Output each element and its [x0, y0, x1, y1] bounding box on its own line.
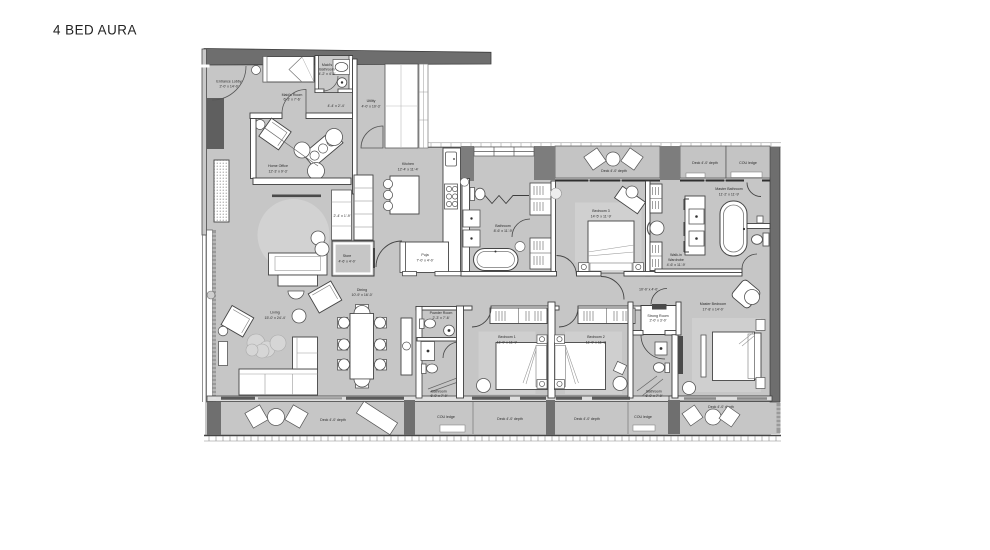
- svg-text:4'-4' x 2'-4': 4'-4' x 2'-4': [328, 104, 345, 108]
- svg-text:Bathroom: Bathroom: [495, 224, 511, 228]
- svg-text:Deck 4'-0' depth: Deck 4'-0' depth: [574, 417, 600, 421]
- svg-text:Living: Living: [270, 311, 279, 315]
- svg-text:Bathroom: Bathroom: [431, 390, 447, 394]
- svg-text:Home Office: Home Office: [268, 164, 288, 168]
- svg-text:Bathroom: Bathroom: [319, 68, 335, 72]
- svg-text:Utility: Utility: [367, 99, 376, 103]
- svg-text:12'-3' x 9'-3': 12'-3' x 9'-3': [269, 170, 288, 174]
- svg-text:2'-3' x 7'-6': 2'-3' x 7'-6': [433, 316, 450, 320]
- svg-text:11'-0' x 11'-9': 11'-0' x 11'-9': [497, 341, 518, 345]
- svg-text:4 BED AURA: 4 BED AURA: [53, 23, 137, 38]
- svg-text:Maid's: Maid's: [322, 63, 332, 67]
- svg-text:Bedroom 1: Bedroom 1: [498, 335, 516, 339]
- svg-text:Entrance Lobby: Entrance Lobby: [216, 80, 241, 84]
- svg-text:8'-6' x 11'-9': 8'-6' x 11'-9': [494, 229, 513, 233]
- svg-text:Powder Room: Powder Room: [430, 311, 453, 315]
- svg-text:11'-2' x 11'-9': 11'-2' x 11'-9': [719, 193, 740, 197]
- svg-text:COU ledge: COU ledge: [634, 415, 652, 419]
- svg-text:Store: Store: [343, 254, 352, 258]
- svg-text:10'-0' x 4'-0': 10'-0' x 4'-0': [639, 288, 658, 292]
- svg-text:COU ledge: COU ledge: [739, 161, 757, 165]
- svg-text:Master Bathroom: Master Bathroom: [715, 187, 743, 191]
- svg-text:2'-0' x 14'-0': 2'-0' x 14'-0': [220, 85, 239, 89]
- svg-text:Master Bedroom: Master Bedroom: [700, 302, 727, 306]
- svg-text:4'-2' x 4'-6': 4'-2' x 4'-6': [319, 72, 336, 76]
- svg-text:Bedroom 2: Bedroom 2: [587, 335, 605, 339]
- svg-text:Dining: Dining: [357, 288, 367, 292]
- svg-text:6'-0' x 7'-9': 6'-0' x 7'-9': [431, 394, 448, 398]
- svg-text:14'-5' x 11'-9': 14'-5' x 11'-9': [591, 215, 612, 219]
- svg-text:Kitchen: Kitchen: [402, 162, 414, 166]
- svg-text:11'-0' x 11'-9': 11'-0' x 11'-9': [586, 341, 607, 345]
- svg-text:6'-0' x 7'-9': 6'-0' x 7'-9': [646, 394, 663, 398]
- svg-text:Deck 4'-0' depth: Deck 4'-0' depth: [601, 169, 627, 173]
- svg-text:2'-4' x 1'-9': 2'-4' x 1'-9': [334, 214, 351, 218]
- svg-text:2'-0' x 3'-0': 2'-0' x 3'-0': [650, 319, 667, 323]
- svg-text:4'-6' x 11'-9': 4'-6' x 11'-9': [667, 263, 686, 267]
- svg-text:7'-0' x 4'-0': 7'-0' x 4'-0': [417, 259, 434, 263]
- svg-text:Deck 4'-0' depth: Deck 4'-0' depth: [692, 161, 718, 165]
- svg-text:COU ledge: COU ledge: [437, 415, 455, 419]
- svg-text:Bedroom 3: Bedroom 3: [592, 209, 610, 213]
- svg-text:4'-6' x 4'-0': 4'-6' x 4'-0': [339, 260, 356, 264]
- svg-text:Puja: Puja: [421, 253, 428, 257]
- svg-text:10'-9' x 16'-0': 10'-9' x 16'-0': [352, 293, 373, 297]
- svg-text:17'-8' x 14'-0': 17'-8' x 14'-0': [703, 308, 724, 312]
- svg-text:Deck 4'-0' depth: Deck 4'-0' depth: [320, 418, 346, 422]
- svg-text:12'-4' x 11'-4': 12'-4' x 11'-4': [398, 168, 419, 172]
- svg-text:Walk-in: Walk-in: [670, 253, 682, 257]
- svg-text:4'-0' x 10'-3': 4'-0' x 10'-3': [362, 105, 381, 109]
- svg-text:Bathroom: Bathroom: [646, 390, 662, 394]
- svg-text:Wardrobe: Wardrobe: [668, 258, 684, 262]
- svg-text:Deck 4'-0' depth: Deck 4'-0' depth: [497, 417, 523, 421]
- svg-text:Strong Room: Strong Room: [647, 314, 668, 318]
- svg-text:15'-0' x 24'-4': 15'-0' x 24'-4': [265, 316, 286, 320]
